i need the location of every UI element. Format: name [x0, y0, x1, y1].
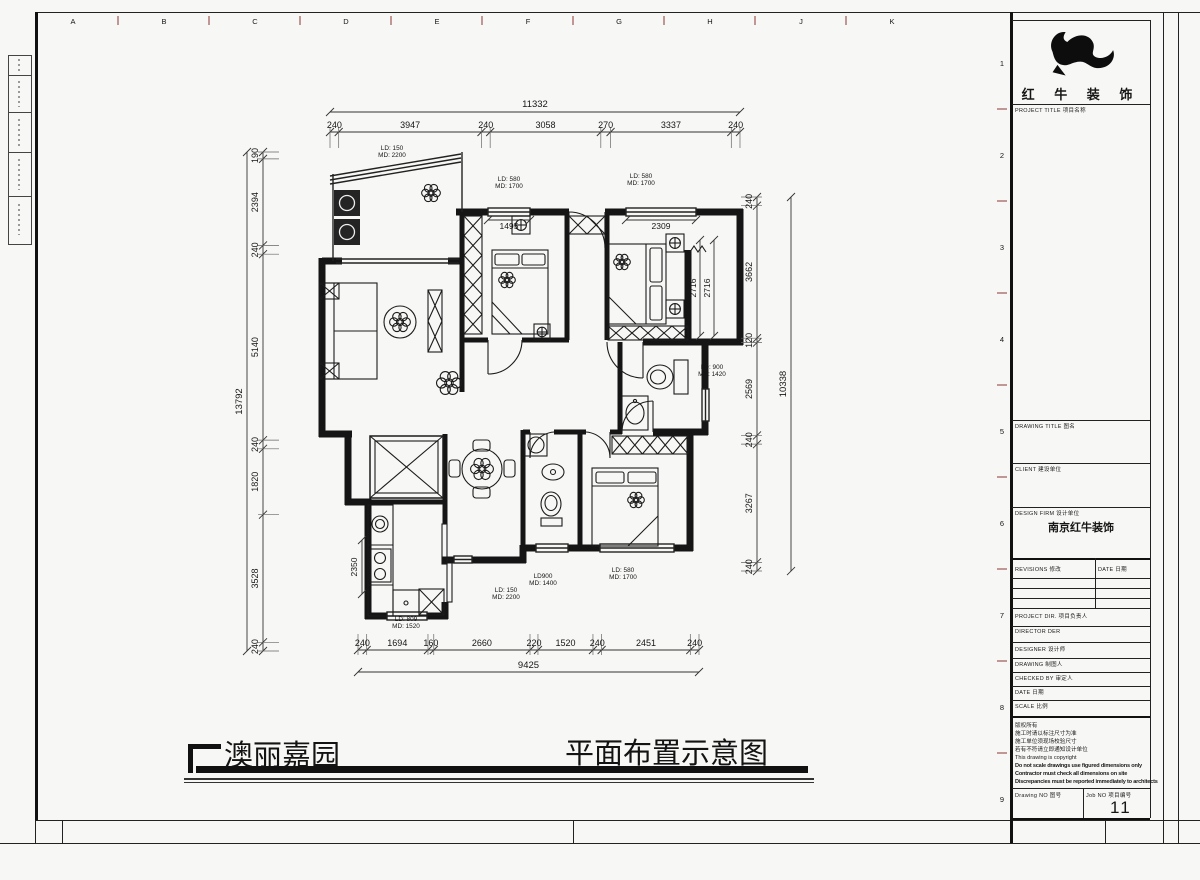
svg-text:1: 1: [1000, 59, 1004, 68]
bathroom1-fixtures: [622, 360, 688, 430]
svg-text:B: B: [161, 17, 166, 26]
svg-text:1520: 1520: [555, 638, 575, 648]
svg-text:240: 240: [744, 194, 754, 209]
grid-reference-layer: ABCDEFGHJK123456789: [70, 16, 1007, 804]
svg-text:4: 4: [1000, 335, 1004, 344]
svg-text:G: G: [616, 17, 622, 26]
svg-text:11332: 11332: [522, 99, 548, 110]
svg-text:2716: 2716: [688, 278, 698, 297]
svg-text:3: 3: [1000, 243, 1004, 252]
coffee-table: [384, 306, 416, 338]
field-director: DIRECTOR DER: [1015, 629, 1060, 635]
svg-text:240: 240: [250, 437, 260, 452]
svg-text:J: J: [799, 17, 803, 26]
svg-text:LD: 580MD: 1700: LD: 580MD: 1700: [495, 176, 523, 190]
svg-text:LD: 580MD: 1700: LD: 580MD: 1700: [609, 567, 637, 581]
bathroom2-fixtures: [525, 434, 564, 526]
aux-dimensions-layer: 14952309271627162350: [349, 216, 718, 598]
svg-text:LD: 580MD: 1700: LD: 580MD: 1700: [627, 173, 655, 187]
field-drawing: DRAWING 制图人: [1015, 660, 1063, 668]
svg-text:LD: 900MD: 1420: LD: 900MD: 1420: [698, 364, 726, 378]
svg-text:3947: 3947: [400, 120, 420, 130]
note-line: 施工时请以标注尺寸为准: [1015, 731, 1077, 739]
svg-text:D: D: [343, 17, 349, 26]
field-scale: SCALE 比例: [1015, 702, 1048, 710]
svg-text:2309: 2309: [652, 221, 671, 231]
footer-underline-1: [184, 778, 814, 780]
svg-text:E: E: [434, 17, 439, 26]
svg-text:2660: 2660: [472, 638, 492, 648]
svg-text:2: 2: [1000, 151, 1004, 160]
svg-text:3528: 3528: [250, 568, 260, 588]
svg-text:240: 240: [355, 638, 370, 648]
svg-text:LD: 150MD: 2200: LD: 150MD: 2200: [492, 587, 520, 601]
svg-text:7: 7: [1000, 611, 1004, 620]
tv-cabinet: [428, 290, 442, 352]
field-client: CLIENT 建设单位: [1015, 465, 1061, 473]
svg-text:3662: 3662: [744, 262, 754, 282]
svg-text:240: 240: [687, 638, 702, 648]
svg-text:220: 220: [526, 638, 541, 648]
svg-text:10338: 10338: [778, 371, 789, 397]
company-logo: [1040, 24, 1124, 78]
field-design-firm: DESIGN FIRM 设计单位: [1015, 509, 1079, 517]
svg-text:LD: 150MD: 2200: LD: 150MD: 2200: [378, 145, 406, 159]
footer-bar: [196, 766, 808, 773]
svg-text:2451: 2451: [636, 638, 656, 648]
bed-third: [592, 468, 658, 546]
kitchen-counter: [368, 505, 444, 616]
svg-text:3267: 3267: [744, 493, 754, 513]
field-project-title: PROJECT TITLE 项目名称: [1015, 106, 1086, 114]
svg-text:240: 240: [744, 559, 754, 574]
dining-table: [449, 440, 515, 498]
note-line: 若有不符请立即通知设计单位: [1015, 747, 1088, 755]
svg-text:9: 9: [1000, 795, 1004, 804]
svg-text:A: A: [70, 17, 75, 26]
balcony-appliances: [334, 190, 360, 245]
field-designer: DESIGNER 设计师: [1015, 645, 1065, 653]
note-line: Contractor must check all dimensions on …: [1015, 771, 1127, 779]
field-revision-date: DATE 日期: [1098, 565, 1127, 573]
field-checked-by: CHECKED BY 审定人: [1015, 674, 1073, 682]
svg-text:3058: 3058: [535, 120, 555, 130]
field-revisions: REVISIONS 修改: [1015, 565, 1061, 573]
field-project-dir: PROJECT DIR. 项目负责人: [1015, 612, 1088, 620]
design-firm-value: 南京红牛装饰: [1012, 519, 1150, 535]
svg-text:2394: 2394: [250, 192, 260, 212]
svg-text:13792: 13792: [234, 388, 245, 414]
field-drawing-no: Drawing NO 图号: [1015, 791, 1061, 799]
job-number-value: 11: [1110, 798, 1132, 818]
field-date: DATE 日期: [1015, 688, 1044, 696]
svg-text:C: C: [252, 17, 258, 26]
note-line: This drawing is copyright: [1015, 755, 1077, 763]
sofa: [320, 283, 377, 379]
storage-block: [370, 436, 443, 498]
svg-text:5140: 5140: [250, 337, 260, 357]
note-line: 版权所有: [1015, 723, 1037, 731]
wardrobes: [464, 216, 688, 454]
svg-text:1694: 1694: [387, 638, 407, 648]
svg-text:LD900MD: 1400: LD900MD: 1400: [529, 573, 557, 587]
nightstand-lamps: [512, 216, 684, 340]
svg-text:240: 240: [250, 242, 260, 257]
svg-text:H: H: [707, 17, 712, 26]
svg-text:1495: 1495: [500, 221, 519, 231]
svg-text:K: K: [889, 17, 894, 26]
bed-master: [492, 250, 548, 334]
svg-text:240: 240: [590, 638, 605, 648]
svg-text:1820: 1820: [250, 472, 260, 492]
field-drawing-title: DRAWING TITLE 图名: [1015, 422, 1075, 430]
svg-text:240: 240: [744, 432, 754, 447]
svg-text:240: 240: [478, 120, 493, 130]
svg-text:5: 5: [1000, 427, 1004, 436]
svg-text:160: 160: [423, 638, 438, 648]
svg-text:6: 6: [1000, 519, 1004, 528]
svg-text:3337: 3337: [661, 120, 681, 130]
svg-text:LD: 809MD: 1520: LD: 809MD: 1520: [392, 616, 420, 630]
svg-text:9425: 9425: [518, 660, 539, 671]
svg-text:240: 240: [728, 120, 743, 130]
svg-text:240: 240: [250, 639, 260, 654]
note-line: 施工单位须现场校验尺寸: [1015, 739, 1077, 747]
svg-text:240: 240: [327, 120, 342, 130]
svg-text:8: 8: [1000, 703, 1004, 712]
footer-underline-2: [184, 782, 814, 783]
svg-text:2350: 2350: [349, 557, 359, 576]
svg-text:120: 120: [744, 333, 754, 348]
furniture-layer: [320, 184, 688, 616]
note-line: Discrepancies must be reported immediate…: [1015, 779, 1158, 787]
svg-text:2569: 2569: [744, 379, 754, 399]
svg-text:270: 270: [598, 120, 613, 130]
svg-text:2716: 2716: [702, 278, 712, 297]
svg-text:F: F: [526, 17, 531, 26]
company-name: 红 牛 装 饰: [1012, 84, 1150, 103]
note-line: Do not scale drawings use figured dimens…: [1015, 763, 1142, 771]
cad-sheet: ABCDEFGHJK123456789: [0, 0, 1200, 880]
svg-text:190: 190: [250, 148, 260, 163]
